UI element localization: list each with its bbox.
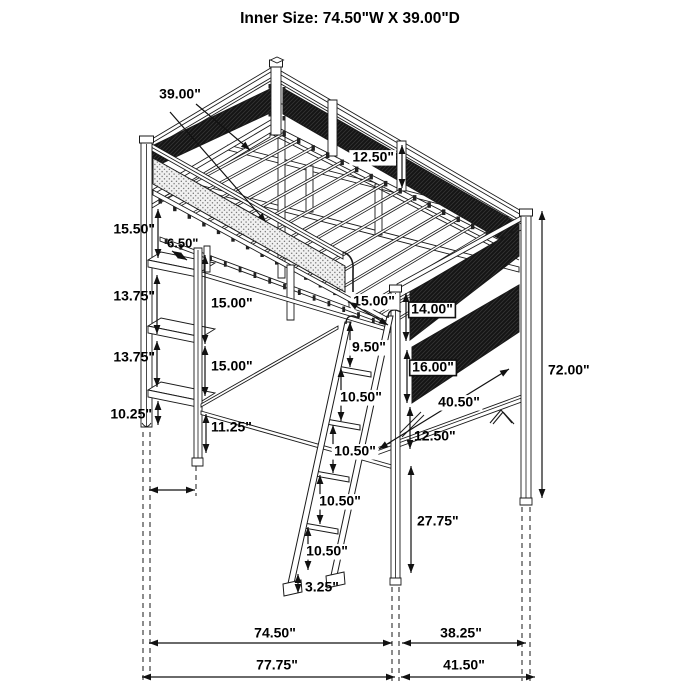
svg-text:15.00": 15.00": [211, 358, 253, 374]
svg-text:15.00": 15.00": [353, 293, 395, 309]
svg-text:13.75": 13.75": [113, 349, 155, 365]
svg-text:12.50": 12.50": [352, 149, 394, 165]
svg-text:77.75": 77.75": [256, 657, 298, 673]
svg-text:10.25": 10.25": [110, 406, 152, 422]
svg-text:72.00": 72.00": [548, 362, 590, 378]
svg-text:27.75": 27.75": [417, 513, 459, 529]
svg-text:39.00": 39.00": [159, 86, 201, 102]
svg-text:74.50": 74.50": [254, 625, 296, 641]
svg-text:3.25": 3.25": [305, 579, 339, 595]
svg-text:40.50": 40.50": [438, 394, 480, 410]
svg-text:Inner Size: 74.50"W X 39.00"D: Inner Size: 74.50"W X 39.00"D: [240, 10, 460, 27]
svg-text:12.50": 12.50": [414, 428, 456, 444]
svg-text:14.00": 14.00": [411, 301, 453, 317]
svg-text:13.75": 13.75": [113, 288, 155, 304]
svg-text:11.25": 11.25": [211, 419, 252, 435]
svg-text:15.00": 15.00": [211, 295, 253, 311]
svg-text:38.25": 38.25": [440, 625, 482, 641]
svg-text:10.50": 10.50": [334, 443, 376, 459]
svg-text:41.50": 41.50": [443, 657, 485, 673]
svg-text:16.00": 16.00": [412, 359, 454, 375]
svg-text:9.50": 9.50": [352, 339, 386, 355]
svg-text:10.50": 10.50": [340, 389, 382, 405]
svg-text:10.50": 10.50": [306, 543, 348, 559]
svg-text:6.50": 6.50": [167, 235, 198, 250]
svg-text:10.50": 10.50": [319, 493, 361, 509]
svg-text:15.50": 15.50": [113, 221, 155, 237]
